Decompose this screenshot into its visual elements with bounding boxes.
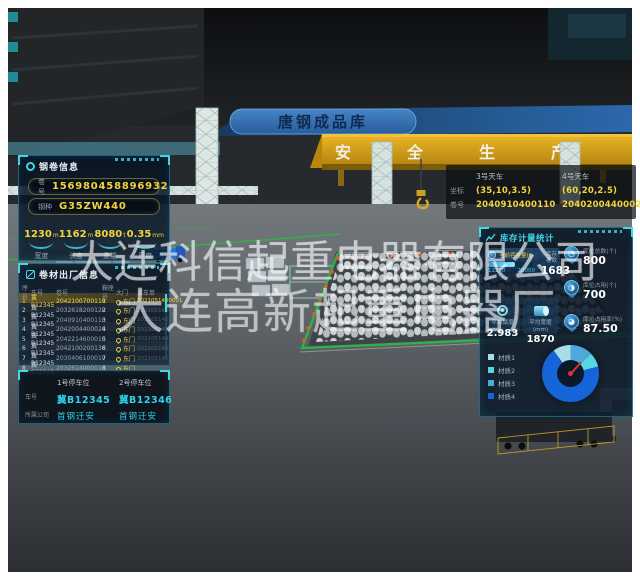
location-pin-icon (115, 346, 122, 353)
location-pin-icon (115, 337, 122, 344)
shipment-table-header: 序号车号卷号鞍座号大门派车单 (19, 283, 169, 293)
secondary-beam (8, 142, 220, 155)
roof-panel (568, 14, 626, 38)
avg-width-box: 平均宽度 (mm) 1870 (523, 298, 558, 334)
throughput-icon (488, 251, 496, 259)
field-value: G35ZW440 (59, 201, 127, 212)
stat-length: 1162m 长度 (59, 222, 94, 261)
stat-weight: 8080t 重量 (93, 222, 126, 261)
steel-grade-field: 钢种 G35ZW440 (28, 198, 160, 215)
banner-title: 唐钢成品库 (278, 113, 368, 131)
throughput-label: 当前吞吐量(t) (499, 251, 533, 259)
slots-total-icon: ◔ (564, 246, 579, 261)
coil-number-field: 卷号 156980458896932 (28, 178, 160, 195)
coil-count-label: 库存卷数 (541, 252, 557, 264)
cylinder-icon (534, 306, 547, 316)
legend-swatch (488, 393, 494, 399)
coil-icon (497, 305, 508, 316)
occupancy-icon: ◕ (564, 314, 579, 329)
parking-panel: 1号停车位 2号停车位 车号 冀B12345 冀B12346 所属公司 首钢迁安… (18, 370, 170, 424)
throughput-box: 当前吞吐量(t) 12230 20000 库存卷数 1683 (485, 248, 560, 278)
throughput-fill (488, 262, 515, 267)
throughput-max: 20000 (518, 268, 536, 274)
panel-title: 卷材出厂信息 (39, 268, 99, 281)
crane-4-coil: 20402004400020 (562, 200, 638, 210)
plate-value-2: 冀B12346 (119, 392, 175, 406)
svg-text:生: 生 (479, 143, 495, 162)
coil-info-panel: 钢卷信息 卷号 156980458896932 钢种 G35ZW440 1230… (18, 155, 170, 261)
field-value: 156980458896932 (52, 181, 168, 192)
inventory-stats-panel: 库存计量统计 当前吞吐量(t) 12230 20000 库存卷数 1683 ◔ … (479, 227, 633, 417)
svg-text:安: 安 (335, 143, 351, 162)
crane-3-coil: 2040910400110 (476, 200, 562, 210)
coords-label: 坐标 (450, 186, 476, 196)
location-pin-icon (115, 318, 122, 325)
stat-total-slots: ◔ 库位总数(个) 800 (564, 246, 632, 267)
crane-4-coords: (60,20,2.5) (562, 186, 638, 196)
coil-label: 卷号 (450, 200, 476, 210)
panel-deco-dots (115, 158, 159, 161)
parking-spot-1-title: 1号停车位 (57, 378, 119, 388)
crane-3-header: 3号天车 (476, 171, 562, 182)
location-pin-icon (115, 298, 122, 305)
company-label: 所属公司 (25, 410, 57, 422)
crane-3-coords: (35,10,3.5) (476, 186, 562, 196)
company-value-2: 首钢迁安 (119, 410, 175, 422)
throughput-current: 12230 (488, 268, 506, 274)
field-label: 钢种 (38, 202, 52, 212)
line-chart-icon (486, 234, 496, 242)
table-scrollbar[interactable] (165, 294, 167, 358)
coil-count-value: 1683 (541, 265, 557, 277)
legend-item: 材质3 (488, 376, 515, 389)
field-label: 卷号 (38, 177, 45, 197)
plate-value-1: 冀B12345 (57, 392, 119, 406)
stat-thickness: 0.35mm 厚度 (127, 222, 164, 261)
legend-item: 材质4 (488, 389, 515, 402)
crane-status-panel: 3号天车 4号天车 坐标 (35,10,3.5) (60,20,2.5) 卷号 … (446, 165, 636, 219)
shipment-info-panel: 卷材出厂信息 序号车号卷号鞍座号大门派车单 1冀B123452042100700… (18, 263, 170, 366)
location-pin-icon (115, 356, 122, 363)
shipment-list-icon (26, 270, 35, 279)
location-pin-icon (115, 308, 122, 315)
parking-spot-2-title: 2号停车位 (119, 378, 175, 388)
location-pin-icon (115, 327, 122, 334)
company-value-1: 首钢迁安 (57, 410, 119, 422)
legend-item: 材质2 (488, 363, 515, 376)
stat-width: 1230m 宽度 (24, 222, 59, 261)
shipment-table-body: 1冀B1234520421007001101东门20210514000012冀B… (19, 293, 169, 370)
coil-info-icon (26, 162, 35, 171)
material-donut (542, 345, 599, 402)
crane-4-header: 4号天车 (562, 171, 638, 182)
legend-swatch (488, 354, 494, 360)
panel-deco-dots (578, 230, 622, 233)
stat-used-slots: ◑ 库位占用(个) 700 (564, 280, 632, 301)
legend-swatch (488, 380, 494, 386)
gauge-needle-hub (568, 371, 573, 376)
panel-title: 钢卷信息 (39, 160, 79, 173)
app-window: 唐钢成品库 安 全 生 产 (0, 0, 640, 580)
legend-swatch (488, 367, 494, 373)
slots-used-icon: ◑ (564, 280, 579, 295)
throughput-bar (488, 262, 533, 267)
panel-title: 库存计量统计 (500, 232, 554, 244)
plate-label: 车号 (25, 392, 57, 406)
legend-item: 材质1 (488, 350, 515, 363)
panel-deco-dots (115, 266, 159, 269)
avg-thickness-box: 平均厚度 2.983 (485, 298, 520, 334)
stat-occupancy-rate: ◕ 库位占用率(%) 87.50 (564, 314, 632, 335)
material-legend: 材质1材质2材质3材质4 (488, 350, 515, 402)
